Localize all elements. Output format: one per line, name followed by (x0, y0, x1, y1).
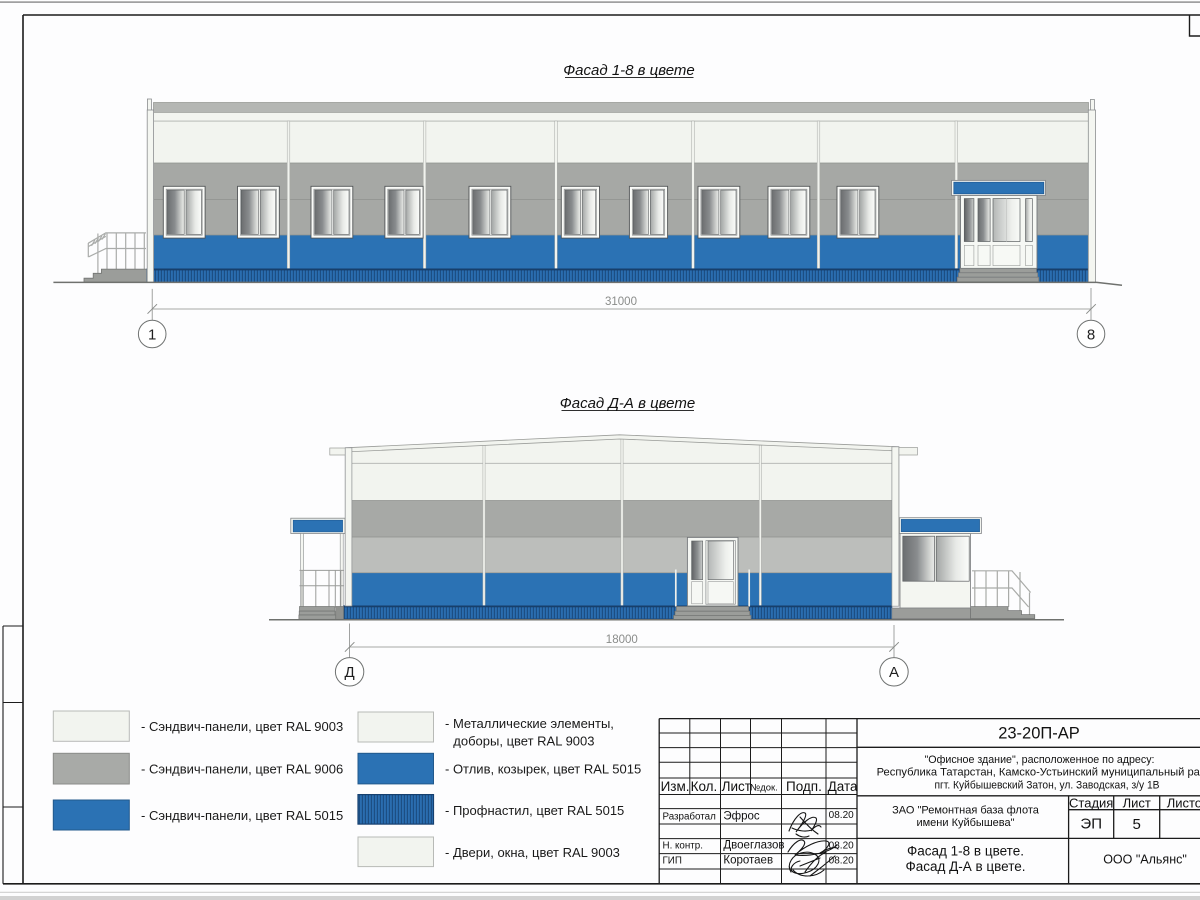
svg-text:доборы, цвет RAL 9003: доборы, цвет RAL 9003 (453, 734, 594, 749)
svg-text:Фасад Д-А в цвете: Фасад Д-А в цвете (560, 395, 695, 412)
svg-text:1: 1 (148, 326, 156, 343)
svg-text:Лист: Лист (722, 779, 751, 794)
svg-text:08.20: 08.20 (829, 855, 854, 866)
svg-text:Двоеглазов: Двоеглазов (723, 840, 784, 852)
svg-text:Д: Д (345, 664, 355, 681)
svg-text:- Профнастил, цвет RAL 5015: - Профнастил, цвет RAL 5015 (445, 803, 624, 818)
svg-text:ГИП: ГИП (663, 855, 682, 866)
svg-text:Дата: Дата (828, 779, 858, 794)
svg-text:Фасад 1-8 в цвете.: Фасад 1-8 в цвете. (907, 844, 1024, 859)
svg-text:- Металлические элементы,: - Металлические элементы, (445, 716, 614, 731)
svg-text:- Сэндвич-панели, цвет RAL 501: - Сэндвич-панели, цвет RAL 5015 (141, 808, 343, 823)
svg-text:Фасад Д-А в цвете.: Фасад Д-А в цвете. (905, 859, 1025, 874)
svg-text:08.20: 08.20 (829, 840, 854, 851)
svg-text:- Двери, окна, цвет RAL 9003: - Двери, окна, цвет RAL 9003 (445, 845, 620, 860)
svg-text:- Сэндвич-панели, цвет RAL 900: - Сэндвич-панели, цвет RAL 9003 (141, 719, 343, 734)
svg-text:Листов: Листов (1167, 796, 1200, 811)
svg-text:- Сэндвич-панели, цвет RAL 900: - Сэндвич-панели, цвет RAL 9006 (141, 762, 343, 777)
svg-text:Эфрос: Эфрос (723, 811, 760, 823)
svg-text:Разработал: Разработал (663, 811, 717, 822)
svg-text:31000: 31000 (605, 296, 637, 308)
svg-text:Стадия: Стадия (1069, 796, 1113, 811)
svg-text:Изм.: Изм. (661, 779, 690, 794)
svg-text:Коротаев: Коротаев (723, 855, 773, 867)
svg-text:Фасад 1-8 в цвете: Фасад 1-8 в цвете (563, 62, 695, 79)
svg-text:ЗАО "Ремонтная база флота: ЗАО "Ремонтная база флота (892, 804, 1040, 816)
svg-text:А: А (889, 664, 899, 681)
svg-text:8: 8 (1087, 326, 1095, 343)
svg-text:5: 5 (1133, 816, 1141, 833)
svg-text:Лист: Лист (1123, 796, 1151, 811)
svg-text:23-20П-АР: 23-20П-АР (998, 725, 1080, 743)
svg-text:ЭП: ЭП (1080, 816, 1102, 833)
svg-text:пгт. Куйбышевский Затон, ул. З: пгт. Куйбышевский Затон, ул. Заводская, … (935, 779, 1160, 791)
svg-text:Республика Татарстан, Камско-У: Республика Татарстан, Камско-Устьинский … (877, 766, 1200, 778)
svg-text:Кол.: Кол. (691, 779, 718, 794)
svg-text:имени Куйбышева": имени Куйбышева" (916, 817, 1014, 829)
svg-text:Н. контр.: Н. контр. (663, 840, 703, 851)
svg-text:ООО "Альянс": ООО "Альянс" (1103, 853, 1187, 867)
svg-text:"Офисное здание", расположенно: "Офисное здание", расположенное по адрес… (925, 754, 1155, 766)
svg-text:18000: 18000 (606, 634, 638, 646)
svg-text:№док.: №док. (750, 782, 778, 793)
svg-text:08.20: 08.20 (829, 810, 854, 821)
svg-text:- Отлив, козырек, цвет RAL 501: - Отлив, козырек, цвет RAL 5015 (445, 762, 641, 777)
svg-text:Подп.: Подп. (786, 779, 822, 794)
